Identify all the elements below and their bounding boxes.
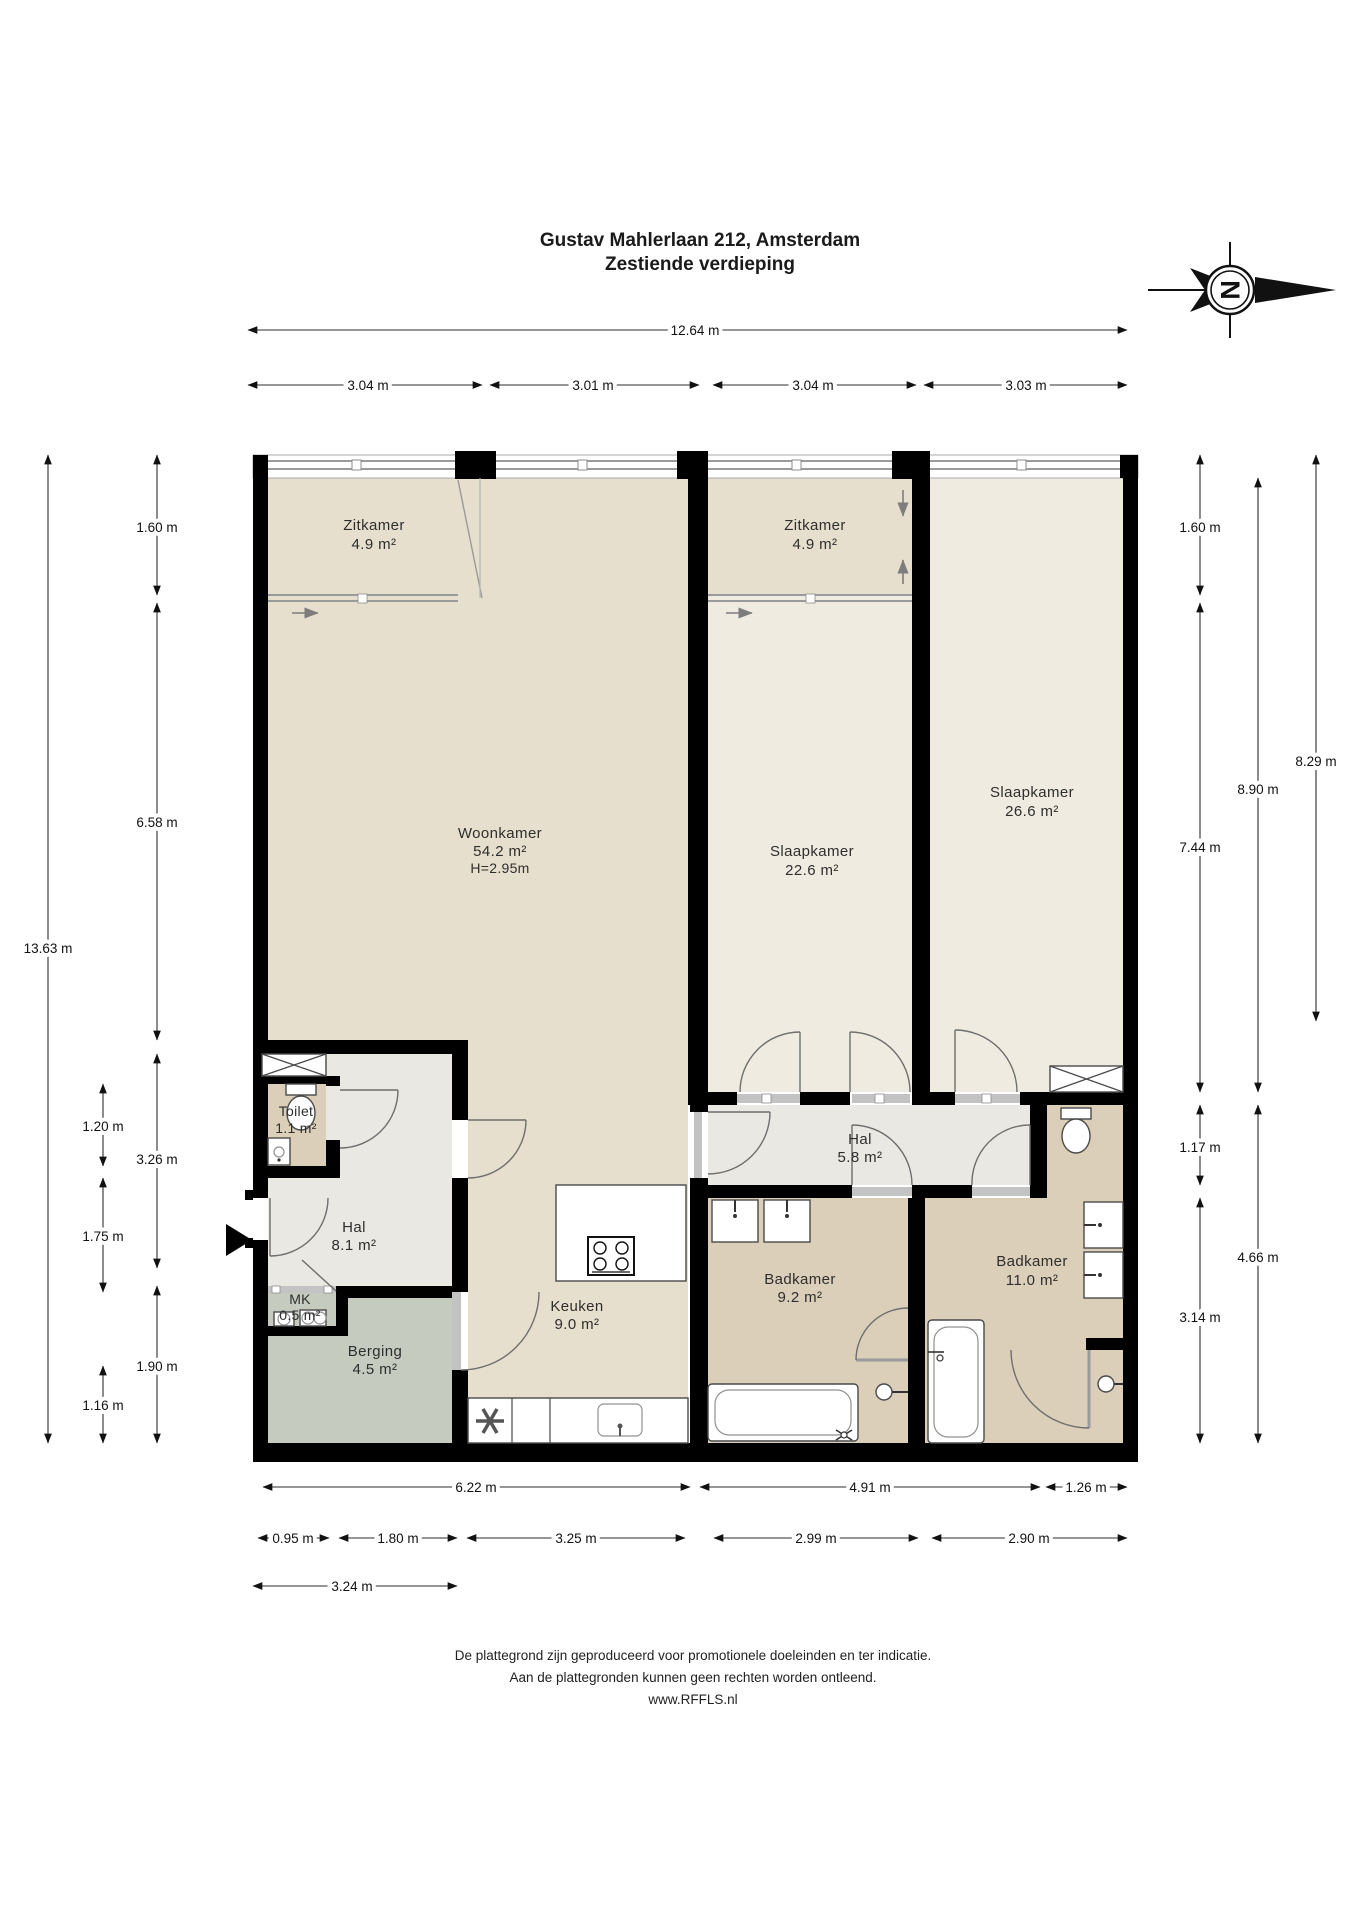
berging-label: Berging bbox=[348, 1343, 403, 1360]
kitchen-counter bbox=[468, 1398, 688, 1443]
dim-left-total: 13.63 m bbox=[24, 941, 73, 956]
toilet-area: 1.1 m² bbox=[275, 1120, 317, 1136]
badkamer-1-label: Badkamer bbox=[764, 1271, 836, 1288]
dim-top-seg: 3.04 m bbox=[347, 378, 388, 393]
dim-bottom: 2.99 m bbox=[795, 1531, 836, 1546]
compass-north-icon: N bbox=[1148, 242, 1336, 338]
hal-1-label: Hal bbox=[342, 1219, 366, 1236]
floorplan-page: Gustav Mahlerlaan 212, Amsterdam Zestien… bbox=[0, 0, 1358, 1920]
hal-1-area: 8.1 m² bbox=[332, 1237, 377, 1254]
woonkamer-area: 54.2 m² bbox=[473, 843, 527, 860]
badkamer-2-label: Badkamer bbox=[996, 1253, 1068, 1270]
hal-2-area: 5.8 m² bbox=[838, 1149, 883, 1166]
dim-bottom: 0.95 m bbox=[272, 1531, 313, 1546]
slaapkamer-2-area: 26.6 m² bbox=[1005, 803, 1059, 820]
zitkamer-left-label: Zitkamer bbox=[343, 517, 405, 534]
dim-top-seg: 3.04 m bbox=[792, 378, 833, 393]
keuken-area: 9.0 m² bbox=[555, 1316, 600, 1333]
dim-top-seg: 3.03 m bbox=[1005, 378, 1046, 393]
dim-right: 8.29 m bbox=[1295, 754, 1336, 769]
toilet-sink bbox=[268, 1138, 290, 1165]
compass-north-arrow bbox=[1255, 277, 1336, 303]
bathroom1-bathtub bbox=[708, 1384, 858, 1441]
dim-left: 1.60 m bbox=[136, 520, 177, 535]
dim-bottom: 4.91 m bbox=[849, 1480, 890, 1495]
dimension-lines-left: 13.63 m 1.60 m 6.58 m 3.26 m 1.90 m 1.20… bbox=[24, 455, 178, 1443]
kitchen-island bbox=[556, 1185, 686, 1281]
footer-disclaimer: De plattegrond zijn geproduceerd voor pr… bbox=[455, 1648, 932, 1707]
zitkamer-left-area: 4.9 m² bbox=[352, 536, 397, 553]
dim-left: 3.26 m bbox=[136, 1152, 177, 1167]
dim-right: 7.44 m bbox=[1179, 840, 1220, 855]
hal-2-label: Hal bbox=[848, 1131, 872, 1148]
dim-bottom: 1.26 m bbox=[1065, 1480, 1106, 1495]
footer-line-2: Aan de plattegronden kunnen geen rechten… bbox=[509, 1670, 876, 1685]
dim-left: 1.90 m bbox=[136, 1359, 177, 1374]
dim-left: 1.16 m bbox=[82, 1398, 123, 1413]
dim-top-seg: 3.01 m bbox=[572, 378, 613, 393]
badkamer-1-area: 9.2 m² bbox=[778, 1289, 823, 1306]
dim-top-total: 12.64 m bbox=[671, 323, 720, 338]
dim-bottom: 3.24 m bbox=[331, 1579, 372, 1594]
bathroom2-bathtub bbox=[928, 1320, 984, 1443]
dimension-lines-bottom: 6.22 m 4.91 m 1.26 m 0.95 m 1.80 m 3.25 … bbox=[253, 1480, 1127, 1594]
dimension-lines-top: 12.64 m 3.04 m 3.01 m 3.04 m 3.03 m bbox=[248, 323, 1127, 393]
dim-bottom: 2.90 m bbox=[1008, 1531, 1049, 1546]
entrance-marker bbox=[226, 1224, 252, 1256]
woonkamer-height: H=2.95m bbox=[470, 860, 529, 876]
dim-bottom: 1.80 m bbox=[377, 1531, 418, 1546]
dim-right: 3.14 m bbox=[1179, 1310, 1220, 1325]
page-subtitle: Zestiende verdieping bbox=[605, 254, 795, 275]
dim-left: 6.58 m bbox=[136, 815, 177, 830]
footer-line-3: www.RFFLS.nl bbox=[647, 1692, 737, 1707]
badkamer-2-area: 11.0 m² bbox=[1006, 1272, 1059, 1289]
dim-bottom: 6.22 m bbox=[455, 1480, 496, 1495]
dim-left: 1.75 m bbox=[82, 1229, 123, 1244]
keuken-label: Keuken bbox=[550, 1298, 603, 1315]
dim-bottom: 3.25 m bbox=[555, 1531, 596, 1546]
mk-area: 0.5 m² bbox=[279, 1307, 321, 1323]
slaapkamer-1-label: Slaapkamer bbox=[770, 843, 854, 860]
bathroom2-toilet bbox=[1061, 1108, 1091, 1153]
woonkamer-label: Woonkamer bbox=[458, 825, 542, 842]
shaft-left bbox=[262, 1054, 326, 1076]
zitkamer-right-area: 4.9 m² bbox=[793, 536, 838, 553]
berging-area: 4.5 m² bbox=[353, 1361, 398, 1378]
zitkamer-right-label: Zitkamer bbox=[784, 517, 846, 534]
slaapkamer-1-area: 22.6 m² bbox=[785, 862, 839, 879]
page-title: Gustav Mahlerlaan 212, Amsterdam bbox=[540, 230, 860, 251]
slaapkamer-2-label: Slaapkamer bbox=[990, 784, 1074, 801]
woonkamer-floor bbox=[268, 478, 688, 1040]
shaft-right bbox=[1050, 1066, 1123, 1092]
dim-right: 1.60 m bbox=[1179, 520, 1220, 535]
dim-right: 1.17 m bbox=[1179, 1140, 1220, 1155]
dimension-lines-right: 1.60 m 7.44 m 1.17 m 3.14 m 8.90 m 4.66 … bbox=[1179, 455, 1336, 1443]
footer-line-1: De plattegrond zijn geproduceerd voor pr… bbox=[455, 1648, 932, 1663]
mk-label: MK bbox=[289, 1291, 311, 1307]
toilet-label: Toilet bbox=[279, 1103, 313, 1119]
dim-right: 8.90 m bbox=[1237, 782, 1278, 797]
compass-letter: N bbox=[1215, 280, 1245, 300]
floorplan-drawing: Gustav Mahlerlaan 212, Amsterdam Zestien… bbox=[0, 0, 1358, 1920]
dim-right: 4.66 m bbox=[1237, 1250, 1278, 1265]
dim-left: 1.20 m bbox=[82, 1119, 123, 1134]
